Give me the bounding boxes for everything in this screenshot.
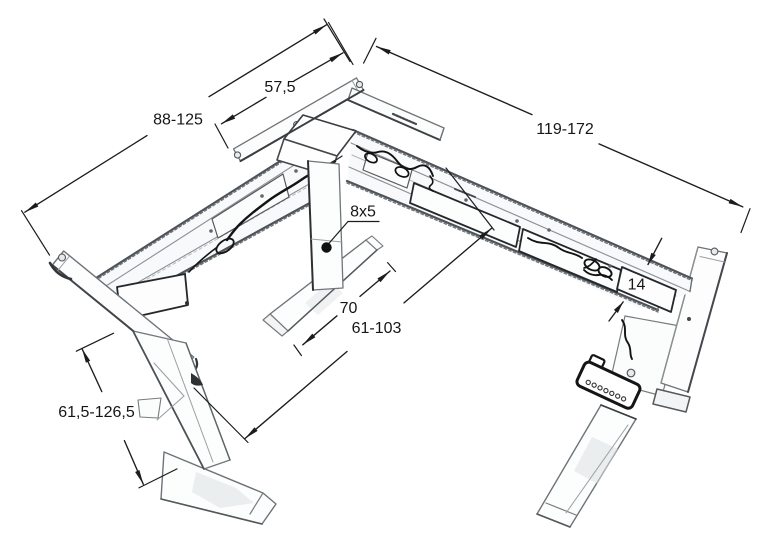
svg-text:119-172: 119-172 xyxy=(536,121,594,138)
svg-text:61-103: 61-103 xyxy=(352,320,402,337)
svg-text:88-125: 88-125 xyxy=(153,112,203,129)
svg-text:8x5: 8x5 xyxy=(350,204,376,221)
svg-text:61,5-126,5: 61,5-126,5 xyxy=(58,404,135,421)
svg-text:14: 14 xyxy=(628,277,646,294)
svg-text:70: 70 xyxy=(340,300,358,317)
svg-text:57,5: 57,5 xyxy=(264,79,295,96)
